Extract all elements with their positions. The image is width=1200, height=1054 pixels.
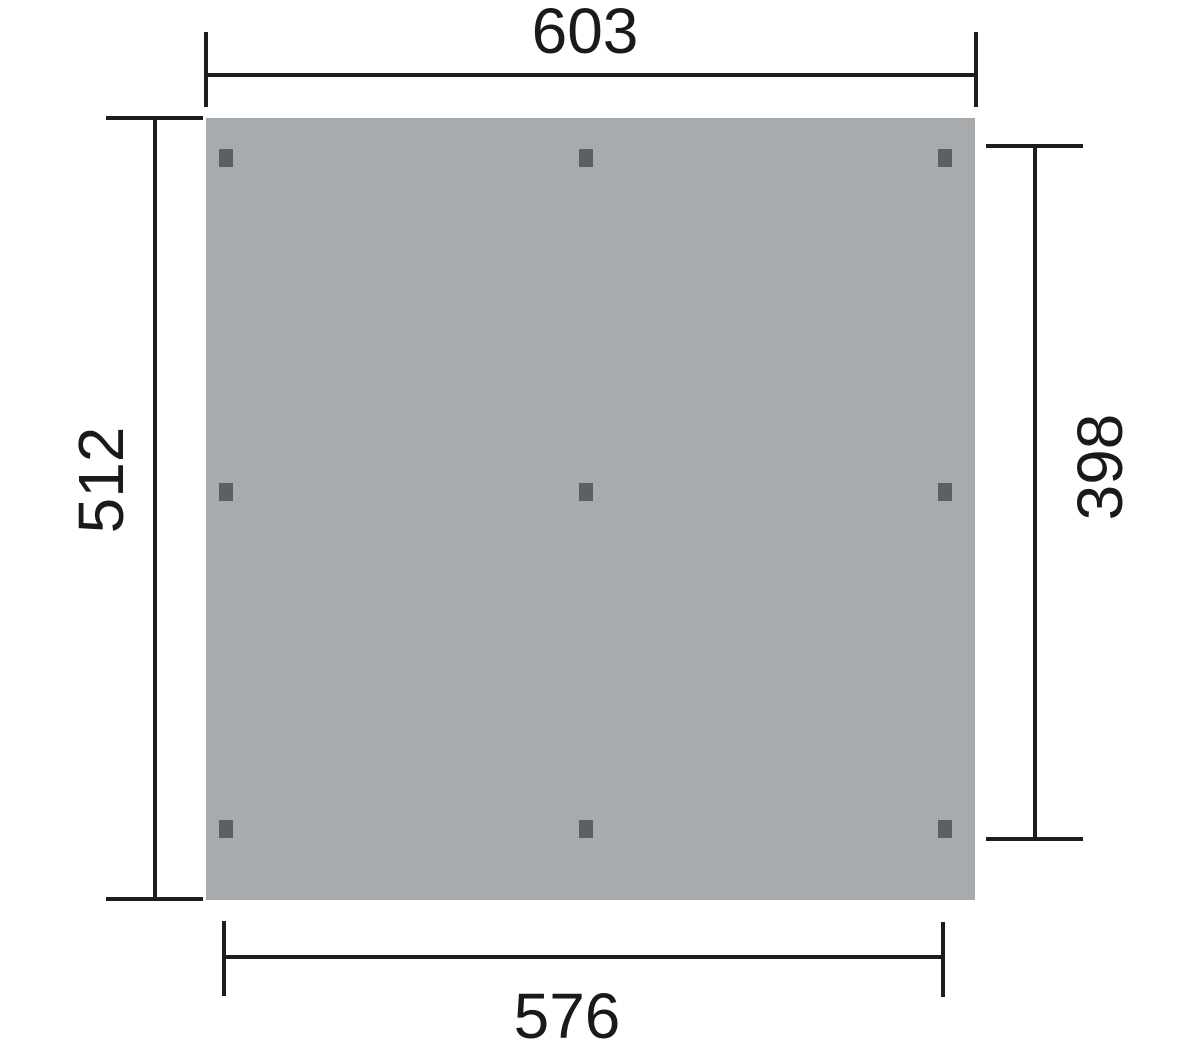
dimension-label-top: 603 [532, 0, 639, 63]
dimension-tick-bottom-left [222, 921, 226, 996]
dimension-tick-left-top [106, 116, 203, 120]
dimension-tick-right-top [986, 144, 1083, 148]
dimension-tick-bottom-right [941, 922, 945, 997]
dimension-label-bottom: 576 [514, 984, 621, 1048]
dimension-tick-top-right [974, 32, 978, 107]
dimension-tick-left-bottom [106, 897, 203, 901]
dimension-tick-top-left [204, 32, 208, 107]
post-marker [219, 820, 233, 838]
technical-drawing-canvas: 603 512 398 576 [0, 0, 1200, 1054]
post-marker [579, 483, 593, 501]
post-marker [579, 149, 593, 167]
dimension-label-left: 512 [69, 427, 133, 534]
post-marker [938, 149, 952, 167]
post-marker [579, 820, 593, 838]
slab-surface [206, 118, 975, 900]
post-marker [219, 483, 233, 501]
dimension-line-right [1033, 146, 1037, 839]
dimension-tick-right-bottom [986, 837, 1083, 841]
post-marker [219, 149, 233, 167]
post-marker [938, 483, 952, 501]
dimension-label-right: 398 [1068, 414, 1132, 521]
dimension-line-left [153, 118, 157, 900]
post-marker [938, 820, 952, 838]
dimension-line-top [206, 73, 976, 77]
dimension-line-bottom [224, 955, 943, 959]
